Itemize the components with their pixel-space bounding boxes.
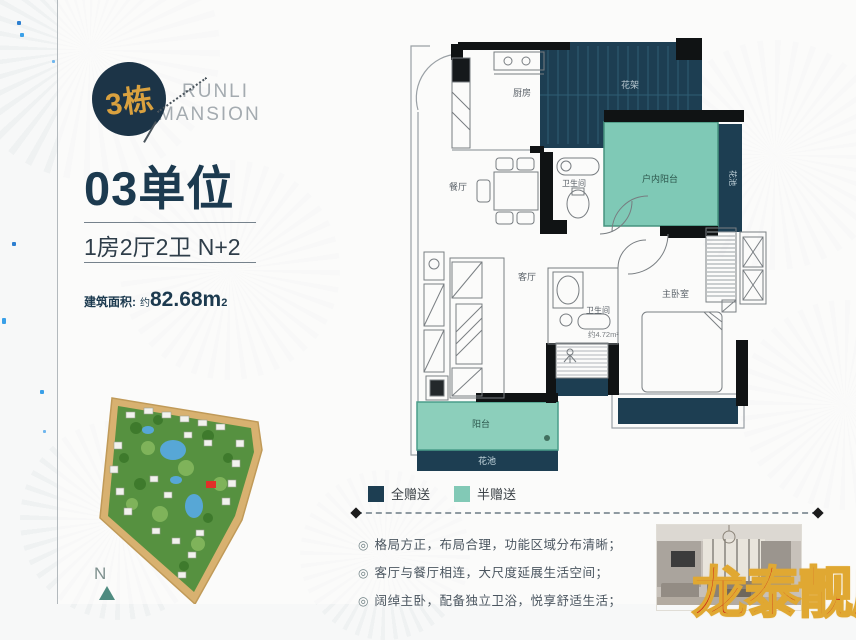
building-badge-label: 3栋: [102, 74, 156, 124]
feature-list: ◎ 格局方正，布局合理，功能区域分布清晰； ◎ 客厅与餐厅相连，大尺度延展生活空…: [358, 534, 622, 618]
unit-layout: 1房2厅2卫 N+2: [84, 228, 241, 262]
scan-speck: [40, 390, 44, 394]
divider-rule: [84, 262, 256, 263]
room-label-indoor-balcony: 户内阳台: [642, 173, 678, 184]
feature-text: 客厅与餐厅相连，大尺度延展生活空间；: [374, 562, 608, 581]
room-label-dining: 餐厅: [449, 181, 467, 192]
room-label-master-bedroom: 主卧室: [662, 288, 689, 299]
room-label-bathroom-master: 卫生间: [586, 305, 610, 315]
built-area-approx: 约: [140, 294, 150, 309]
room-label-living: 客厅: [518, 271, 536, 282]
scan-speck: [52, 60, 55, 63]
scan-speck: [43, 430, 46, 433]
room-label-kitchen: 厨房: [513, 87, 531, 98]
dining-furniture: [477, 158, 538, 224]
divider-rule: [84, 222, 256, 223]
feature-item: ◎ 阔绰主卧，配备独立卫浴，悦享舒适生活；: [358, 590, 622, 609]
bullet-icon: ◎: [358, 566, 368, 580]
built-area-sup: 2: [221, 297, 227, 309]
living-furniture: [424, 252, 504, 400]
room-label-bathroom-top: 卫生间: [562, 178, 586, 188]
built-area: 建筑面积: 约 82.68m 2: [84, 288, 227, 312]
compass-north-label: N: [94, 564, 106, 584]
site-watermark: 龙泰靓房: [692, 548, 856, 628]
legend-label: 全赠送: [391, 484, 430, 503]
built-area-label: 建筑面积:: [84, 293, 136, 310]
page-edge-line: [57, 0, 58, 604]
site-plan-map: [88, 388, 303, 609]
room-label-flower-pool-bottom: 花池: [478, 455, 496, 466]
compass-arrow-icon: [99, 586, 115, 600]
scan-speck: [2, 318, 6, 324]
room-label-balcony: 阳台: [472, 418, 490, 429]
legend-item-half-gift: 半赠送: [454, 484, 516, 503]
feature-item: ◎ 客厅与餐厅相连，大尺度延展生活空间；: [358, 562, 622, 581]
legend-swatch-navy: [368, 486, 384, 502]
built-area-value: 82.68m: [150, 288, 221, 312]
scan-speck: [17, 21, 21, 25]
scan-speck: [12, 242, 16, 246]
kitchen-fixtures: [452, 52, 544, 148]
site-plan-highlight-building: [206, 481, 216, 488]
legend-swatch-teal: [454, 486, 470, 502]
room-label-flower-rack: 花架: [621, 79, 639, 90]
feature-text: 格局方正，布局合理，功能区域分布清晰；: [374, 534, 621, 553]
floorplan-legend: 全赠送 半赠送: [368, 484, 516, 503]
room-label-bathroom-master-area: 约4.72m²: [588, 329, 619, 339]
room-label-flower-pool-side: 花池: [728, 170, 738, 186]
legend-item-full-gift: 全赠送: [368, 484, 430, 503]
brand-line2: MANSION: [158, 103, 261, 126]
floor-plan: 厨房 花架 餐厅 卫生间 户内阳台 花池 客厅 卫生间 约4.72m² 主卧室 …: [400, 28, 780, 485]
brand-name: RUNLI MANSION: [158, 80, 261, 126]
bullet-icon: ◎: [358, 594, 368, 608]
feature-text: 阔绰主卧，配备独立卫浴，悦享舒适生活；: [374, 590, 621, 609]
dashed-divider: [356, 512, 818, 514]
bullet-icon: ◎: [358, 538, 368, 552]
legend-label: 半赠送: [477, 484, 516, 503]
brand-line1: RUNLI: [182, 80, 261, 103]
feature-item: ◎ 格局方正，布局合理，功能区域分布清晰；: [358, 534, 622, 553]
unit-title: 03单位: [84, 150, 234, 219]
scan-speck: [20, 33, 24, 37]
